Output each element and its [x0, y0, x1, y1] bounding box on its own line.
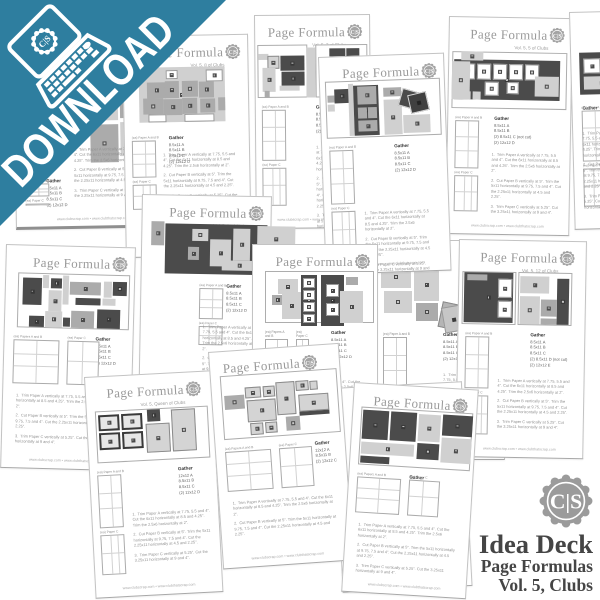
- svg-text:C|S: C|S: [553, 34, 562, 40]
- svg-text:C|S: C|S: [252, 212, 261, 218]
- svg-text:C|S: C|S: [358, 260, 366, 266]
- svg-text:C|S: C|S: [305, 360, 314, 367]
- svg-text:C|S: C|S: [350, 30, 358, 36]
- svg-text:C|S: C|S: [550, 489, 582, 513]
- svg-text:C|S: C|S: [456, 404, 465, 411]
- svg-text:C|S: C|S: [425, 69, 434, 75]
- svg-text:C|S: C|S: [116, 263, 125, 269]
- svg-text:C|S: C|S: [189, 387, 198, 393]
- svg-text:C|S: C|S: [563, 257, 572, 263]
